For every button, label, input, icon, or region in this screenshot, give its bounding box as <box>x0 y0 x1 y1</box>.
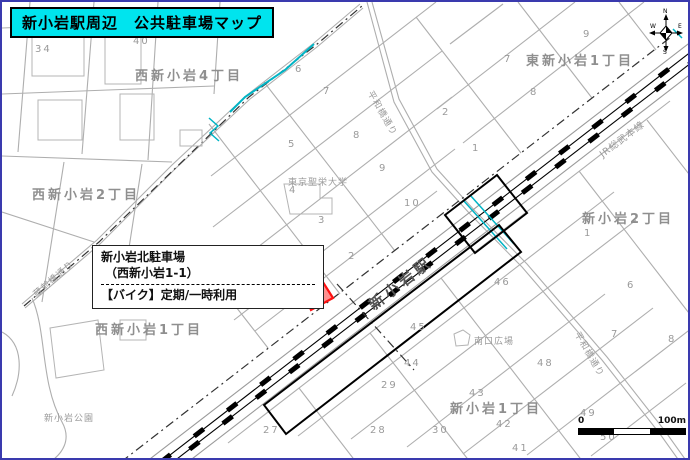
scale-start: 0 <box>578 416 584 426</box>
compass-w: W <box>650 23 656 30</box>
parking-map: 西新小岩4丁目東新小岩1丁目西新小岩2丁目新小岩2丁目西新小岩1丁目新小岩1丁目… <box>0 0 690 460</box>
parking-callout-box: 新小岩北駐車場 （西新小岩1-1） 【バイク】定期/一時利用 <box>92 245 324 309</box>
parking-name: 新小岩北駐車場 <box>101 250 315 266</box>
compass-e: E <box>678 23 682 30</box>
compass-n: N <box>663 8 668 15</box>
parking-address: （西新小岩1-1） <box>105 266 315 282</box>
parking-usage: 【バイク】定期/一時利用 <box>101 288 315 304</box>
scale-bar: 0 100m <box>578 416 686 435</box>
scale-end: 100m <box>658 416 686 426</box>
map-linework <box>2 2 690 460</box>
compass-rose-icon: N E S W <box>648 8 684 54</box>
scale-bar-graphic <box>578 428 686 435</box>
compass-s: S <box>663 49 667 54</box>
callout-divider <box>101 284 315 285</box>
map-title: 新小岩駅周辺 公共駐車場マップ <box>10 7 274 38</box>
